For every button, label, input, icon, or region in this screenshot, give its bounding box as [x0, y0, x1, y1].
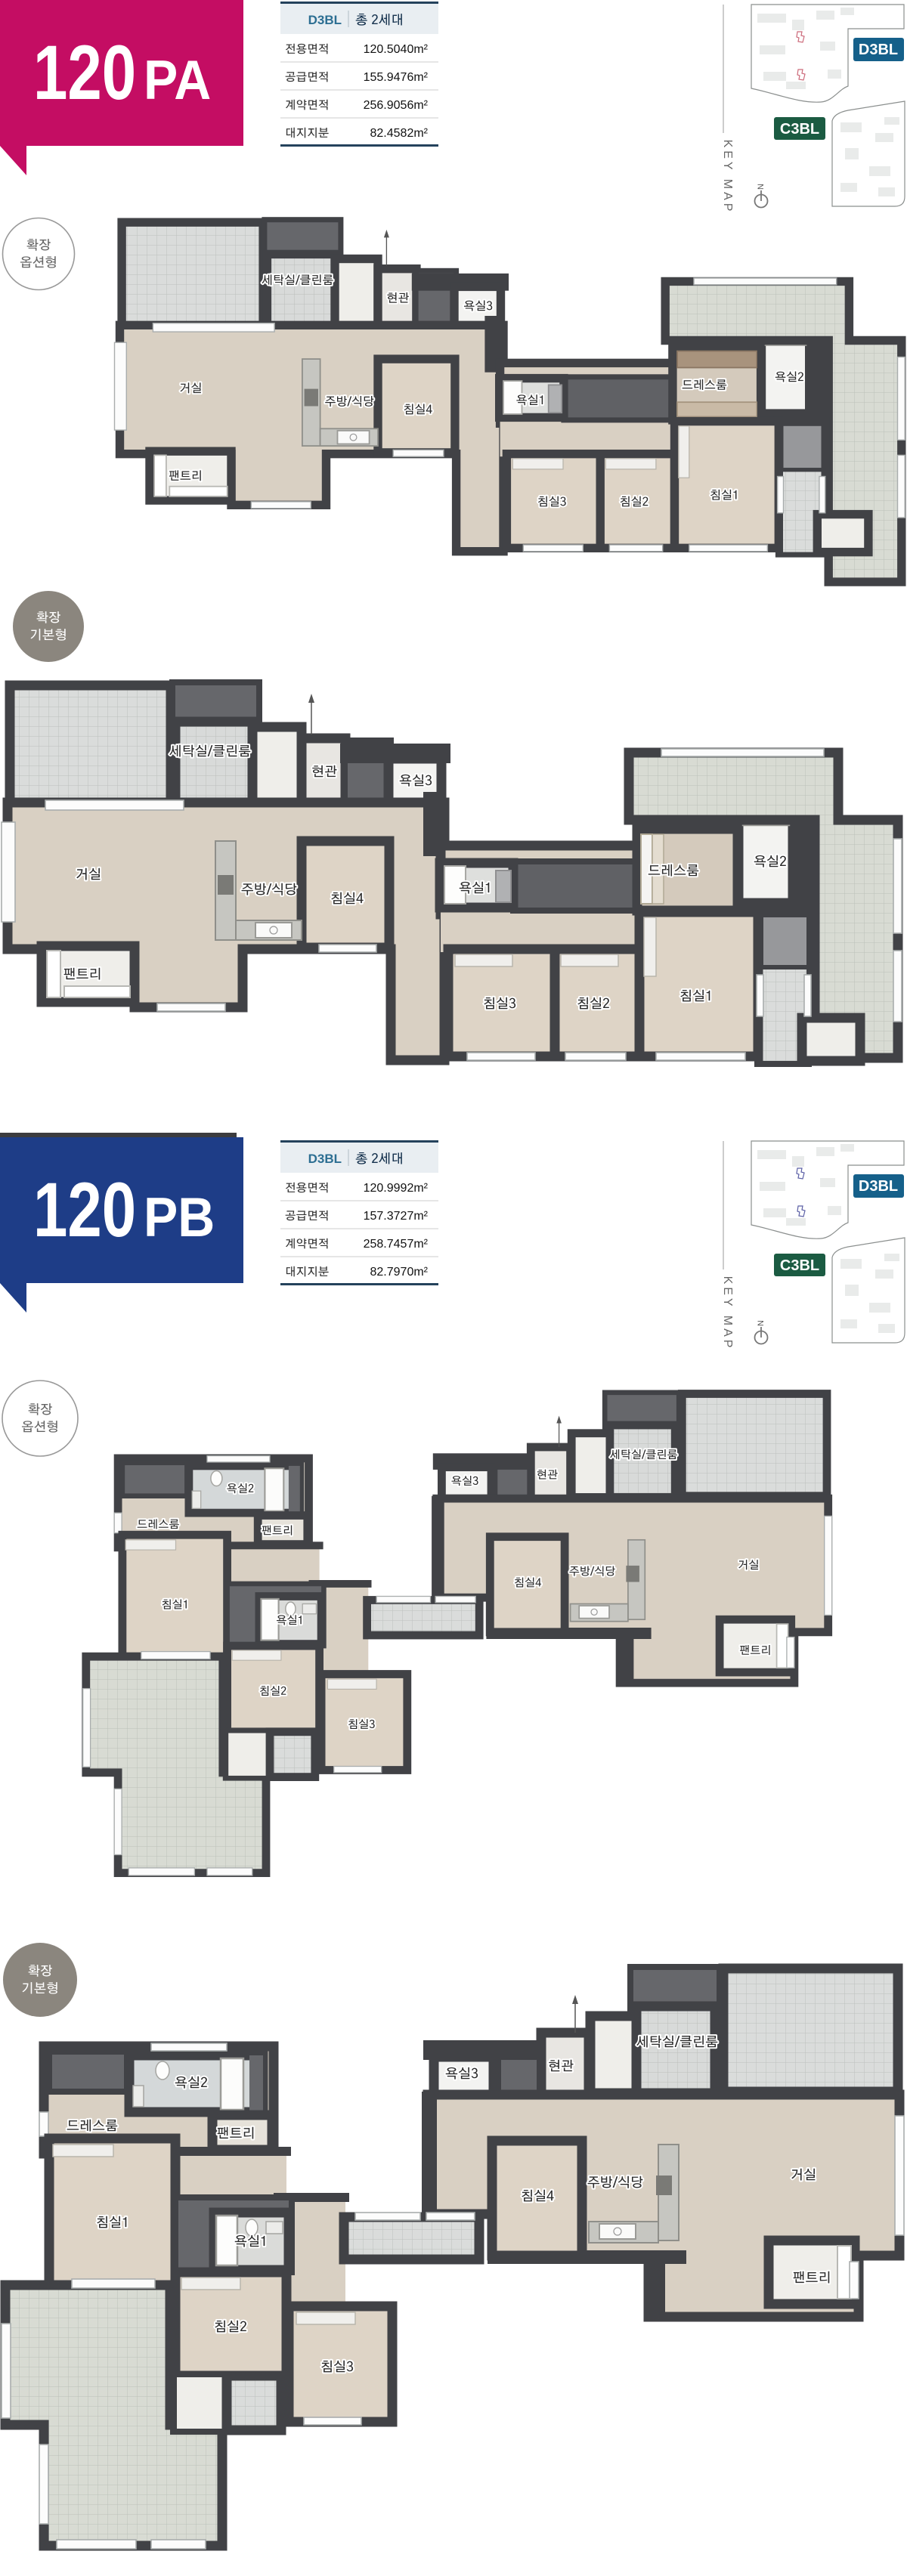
svg-text:D3BL: D3BL	[308, 13, 342, 27]
svg-text:KEY MAP: KEY MAP	[721, 140, 734, 215]
svg-text:D3BL: D3BL	[859, 42, 898, 58]
svg-text:N: N	[757, 1320, 766, 1326]
svg-text:82.4582m²: 82.4582m²	[370, 127, 429, 140]
svg-text:258.7457m²: 258.7457m²	[364, 1238, 429, 1251]
svg-text:157.3727m²: 157.3727m²	[364, 1210, 429, 1223]
svg-text:N: N	[757, 184, 766, 190]
svg-text:120.9992m²: 120.9992m²	[364, 1182, 429, 1195]
svg-text:C3BL: C3BL	[780, 1257, 819, 1274]
svg-text:256.9056m²: 256.9056m²	[364, 99, 429, 112]
svg-text:82.7970m²: 82.7970m²	[370, 1266, 429, 1279]
svg-text:155.9476m²: 155.9476m²	[364, 71, 429, 84]
svg-text:D3BL: D3BL	[859, 1178, 898, 1195]
svg-text:KEY MAP: KEY MAP	[721, 1276, 734, 1351]
svg-text:PA: PA	[144, 49, 211, 111]
svg-text:C3BL: C3BL	[780, 121, 819, 138]
svg-text:D3BL: D3BL	[308, 1152, 342, 1166]
svg-text:120: 120	[33, 1166, 136, 1253]
svg-text:PB: PB	[144, 1186, 215, 1248]
svg-text:120.5040m²: 120.5040m²	[364, 43, 429, 56]
svg-text:120: 120	[33, 29, 136, 116]
